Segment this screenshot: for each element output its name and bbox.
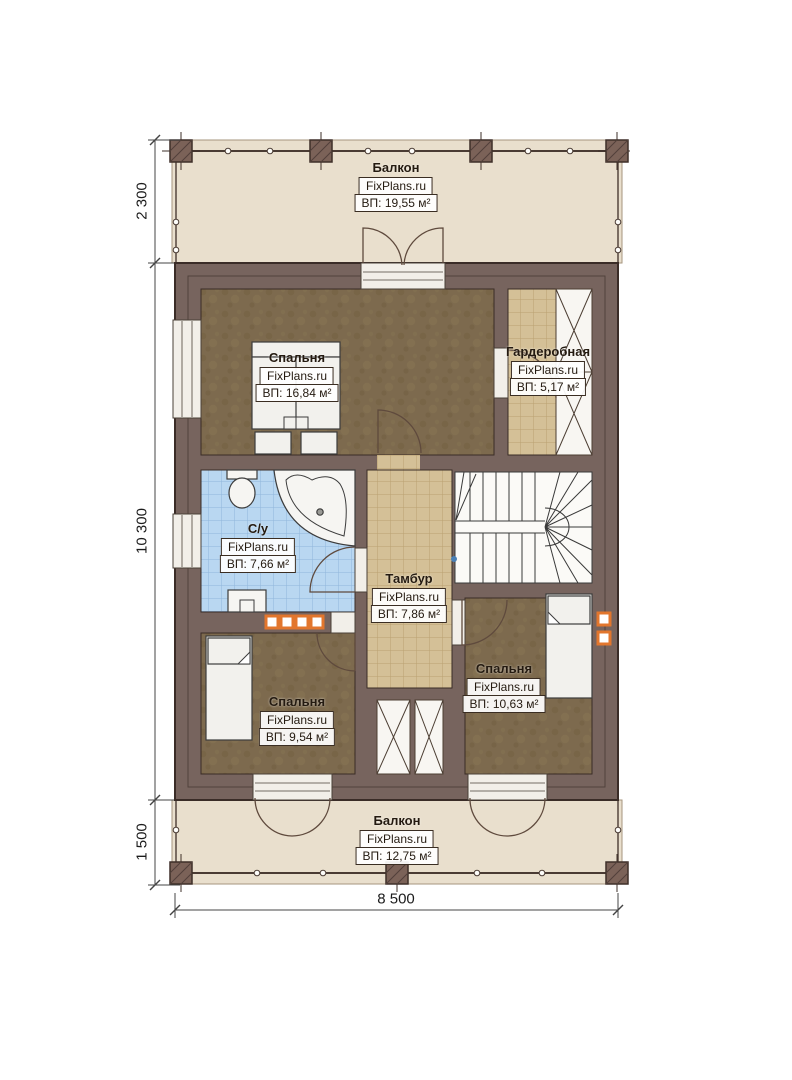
label-bathroom: С/у FixPlans.ru ВП: 7,66 м² xyxy=(220,521,296,573)
toilet xyxy=(227,470,257,508)
room-name: Спальня xyxy=(269,350,325,365)
room-area: ВП: 10,63 м² xyxy=(463,695,546,713)
label-balcony-top: Балкон FixPlans.ru ВП: 19,55 м² xyxy=(355,160,438,212)
dim-top-balcony-depth: 2 300 xyxy=(134,182,151,220)
room-name: Гардеробная xyxy=(506,344,590,359)
room-area: ВП: 19,55 м² xyxy=(355,194,438,212)
room-name: Тамбур xyxy=(385,571,432,586)
brand-watermark: FixPlans.ru xyxy=(221,538,295,556)
brand-watermark: FixPlans.ru xyxy=(360,830,434,848)
hall-closets xyxy=(377,700,443,774)
floor-plan: Балкон FixPlans.ru ВП: 19,55 м² Спальня … xyxy=(0,0,792,1080)
dim-bottom-balcony-depth: 1 500 xyxy=(134,823,151,861)
room-area: ВП: 7,66 м² xyxy=(220,555,296,573)
label-bedroom-left: Спальня FixPlans.ru ВП: 9,54 м² xyxy=(259,694,335,746)
dim-building-width: 8 500 xyxy=(377,891,415,908)
label-bedroom-master: Спальня FixPlans.ru ВП: 16,84 м² xyxy=(256,350,339,402)
room-area: ВП: 5,17 м² xyxy=(510,378,586,396)
room-area: ВП: 9,54 м² xyxy=(259,728,335,746)
bathroom-door-gap xyxy=(355,548,367,592)
room-name: Балкон xyxy=(373,160,420,175)
label-bedroom-right: Спальня FixPlans.ru ВП: 10,63 м² xyxy=(463,661,546,713)
dim-floor-height: 10 300 xyxy=(134,508,151,554)
brand-watermark: FixPlans.ru xyxy=(359,177,433,195)
room-area: ВП: 16,84 м² xyxy=(256,384,339,402)
room-name: Спальня xyxy=(476,661,532,676)
window-bathroom xyxy=(173,514,201,568)
room-name: Балкон xyxy=(374,813,421,828)
room-area: ВП: 12,75 м² xyxy=(356,847,439,865)
brand-watermark: FixPlans.ru xyxy=(511,361,585,379)
room-name: С/у xyxy=(248,521,268,536)
room-name: Спальня xyxy=(269,694,325,709)
brand-watermark: FixPlans.ru xyxy=(260,711,334,729)
bedroom-left-door-gap xyxy=(331,612,355,633)
doorway-strip xyxy=(377,455,420,470)
room-area: ВП: 7,86 м² xyxy=(371,605,447,623)
balcony-door-threshold-top xyxy=(361,263,445,289)
single-bed-right xyxy=(546,594,592,698)
single-bed-left xyxy=(206,636,252,740)
brand-watermark: FixPlans.ru xyxy=(372,588,446,606)
brand-watermark: FixPlans.ru xyxy=(467,678,541,696)
label-balcony-bottom: Балкон FixPlans.ru ВП: 12,75 м² xyxy=(356,813,439,865)
bathroom-sink xyxy=(228,590,266,612)
label-vestibule: Тамбур FixPlans.ru ВП: 7,86 м² xyxy=(371,571,447,623)
room-bedroom-master-floor xyxy=(201,289,494,455)
brand-watermark: FixPlans.ru xyxy=(260,367,334,385)
window-bedroom-master xyxy=(173,320,201,418)
balcony-door-threshold-bottom-right xyxy=(468,774,547,800)
staircase xyxy=(451,472,592,583)
label-wardrobe: Гардеробная FixPlans.ru ВП: 5,17 м² xyxy=(506,344,590,396)
balcony-door-threshold-bottom-left xyxy=(253,774,332,800)
bedroom-right-door-gap xyxy=(452,600,465,645)
